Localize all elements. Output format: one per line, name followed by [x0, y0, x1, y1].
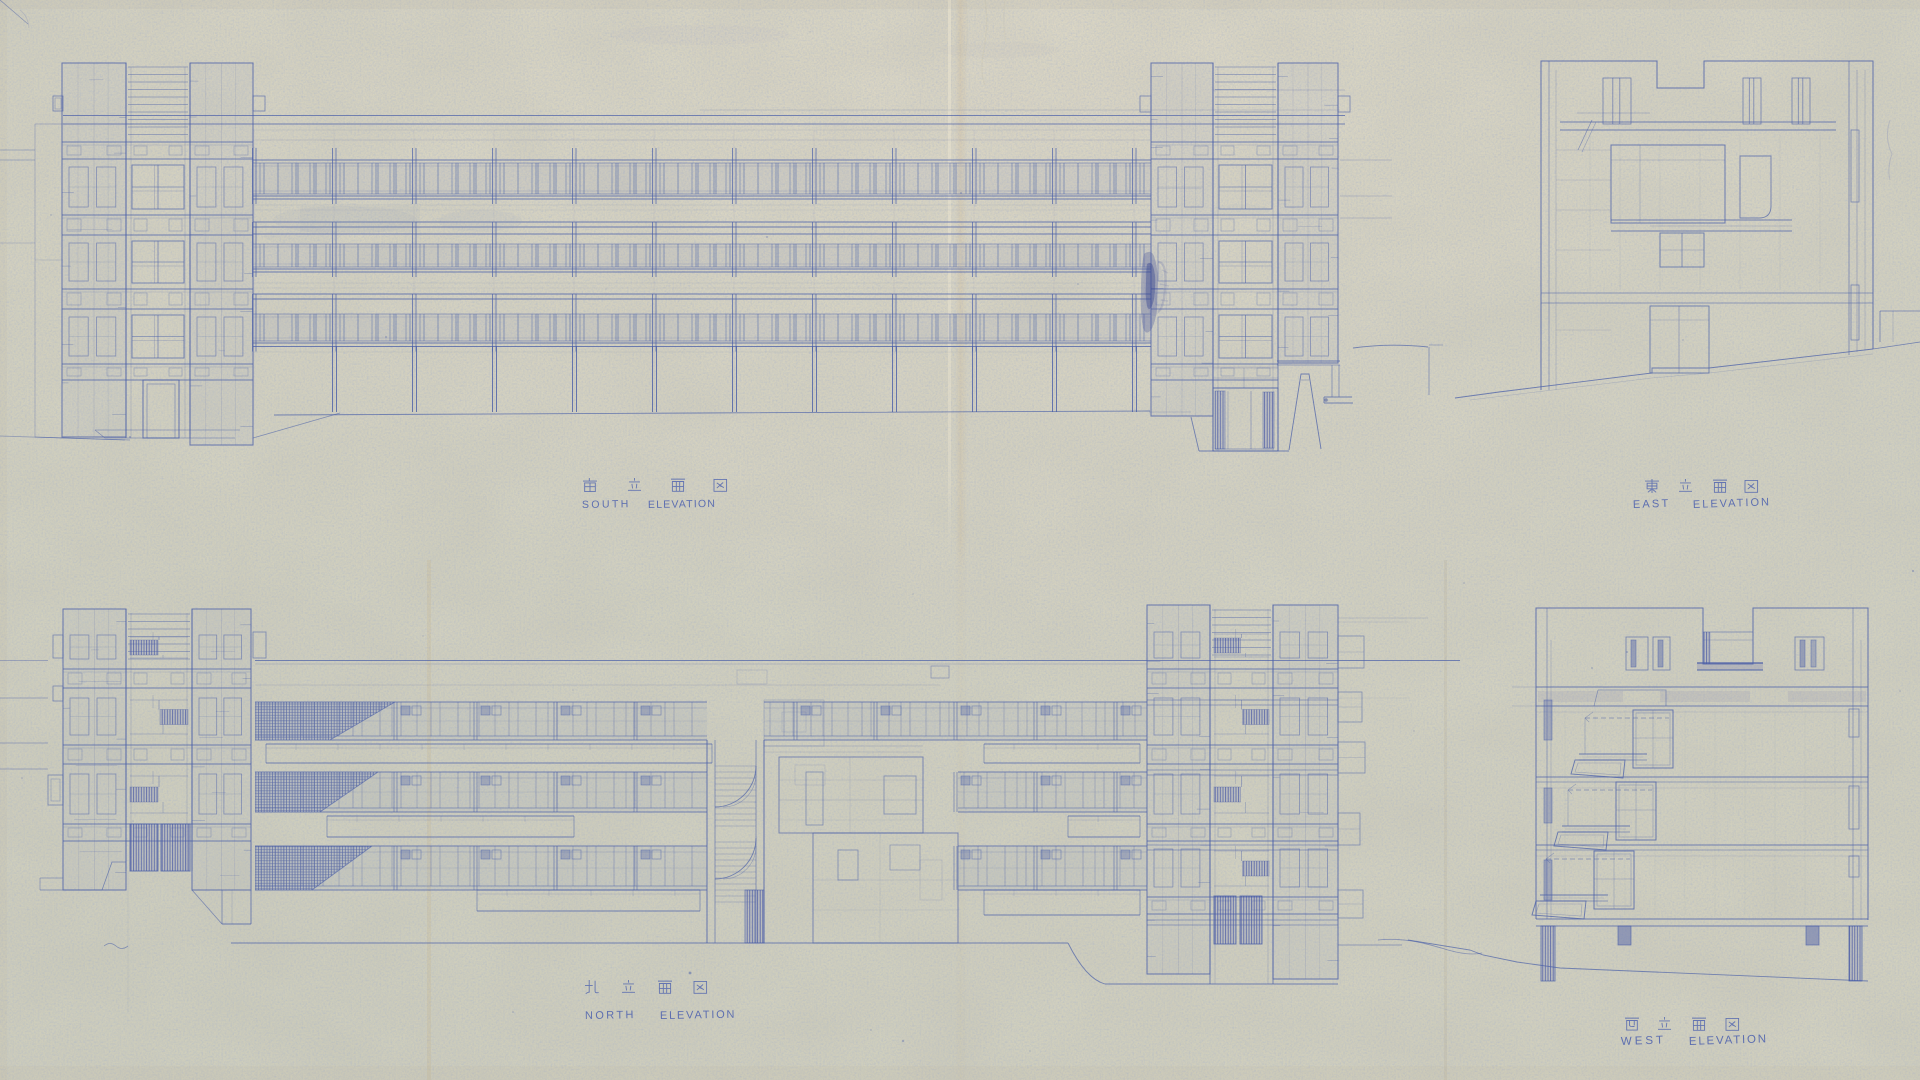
svg-text:SOUTH: SOUTH [582, 498, 631, 511]
svg-text:WEST: WEST [1621, 1034, 1667, 1048]
svg-text:ELEVATION: ELEVATION [648, 498, 716, 511]
svg-text:ELEVATION: ELEVATION [660, 1009, 737, 1022]
svg-text:NORTH: NORTH [585, 1009, 636, 1022]
svg-text:EAST: EAST [1633, 498, 1671, 511]
